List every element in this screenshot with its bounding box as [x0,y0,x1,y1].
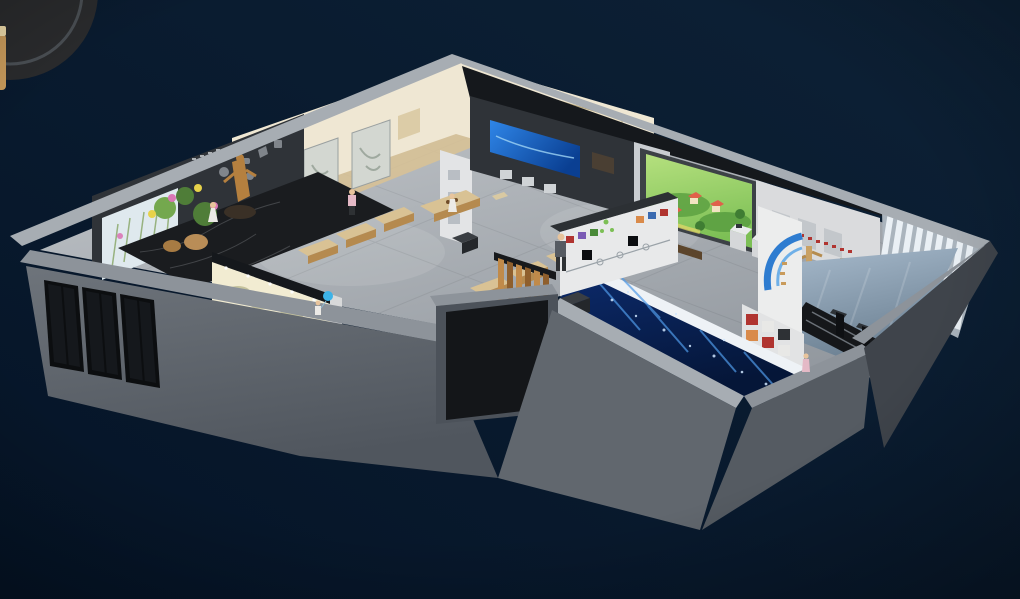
exhibition-render [0,0,1020,599]
render-canvas [0,0,1020,599]
vignette [0,0,1020,599]
